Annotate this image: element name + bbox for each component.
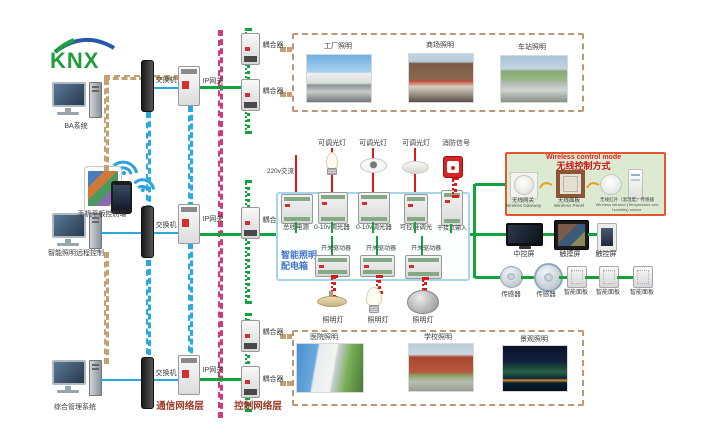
- driver-label: 开关驱动器: [408, 246, 444, 253]
- coupler-icon: [241, 79, 260, 111]
- switch-column-line: [146, 112, 151, 211]
- ip-gateway-label: IP网关: [200, 216, 226, 224]
- bus-stub: [450, 224, 452, 233]
- communication-layer-label: 通信网络层: [148, 402, 212, 412]
- ip-gateway-icon: [178, 355, 200, 395]
- gallery-photo-label: 车站照明: [508, 44, 556, 52]
- bus-power-module: [281, 194, 313, 224]
- photo-factory: [306, 54, 372, 103]
- dome-lamp-icon: [407, 290, 439, 314]
- zap-icon: [586, 179, 600, 191]
- ethernet-line: [100, 379, 141, 381]
- ba-computer-icon: [52, 82, 100, 126]
- sensors-link-line: [521, 276, 534, 279]
- gateway-column-line: [188, 106, 193, 208]
- load-label: 可调光灯: [398, 140, 434, 148]
- wireless-sensor-icon: [600, 174, 622, 195]
- ethernet-line: [152, 87, 178, 89]
- ba-computer-label: BA系统: [52, 123, 100, 131]
- wireless-gateway-dial-icon: [514, 175, 534, 195]
- gallery-photo-label: 医院照明: [300, 334, 348, 342]
- smart-panel-icon: [633, 266, 653, 288]
- ethernet-line: [100, 232, 142, 234]
- smart-panel-icon: [567, 266, 587, 288]
- knx-line: [198, 86, 243, 89]
- management-trunk-line: [104, 252, 109, 364]
- coupler-icon: [241, 33, 260, 65]
- diagram-canvas: KNX BA系统 智能照明远程控制 综合管理系统 手机平板控制端: [0, 0, 715, 443]
- sensor-icon: [500, 266, 523, 288]
- ceiling-lamp-icon: [402, 161, 429, 174]
- management-computer-icon: [52, 360, 100, 404]
- screen-label: 触摸屏: [552, 251, 588, 259]
- driver-label: 开关驱动器: [318, 246, 354, 253]
- monitor-icon: [52, 82, 86, 107]
- lamp-label: 照明灯: [366, 317, 390, 325]
- ip-gateway-label: IP网关: [200, 367, 226, 375]
- coupler-label: 耦合器: [260, 376, 286, 384]
- bus-stub: [372, 222, 374, 233]
- gallery-photo-label: 景观照明: [510, 336, 558, 344]
- coupler-label: 耦合器: [260, 42, 286, 50]
- knx-logo-text: KNX: [50, 48, 99, 74]
- mains-line: [295, 155, 297, 192]
- bus-stub: [331, 222, 333, 233]
- coupler-icon: [241, 207, 260, 239]
- switch-label: 交换机: [154, 222, 178, 230]
- wireless-panel-icon: [556, 170, 585, 198]
- knx-backbone-line: [245, 180, 250, 304]
- load-label: 可调光灯: [355, 140, 391, 148]
- sensor-label: 传感器: [498, 291, 524, 298]
- wireless-item-en: Wireless infrared (Temperature and humid…: [594, 203, 660, 212]
- load-label: 可调光灯: [310, 140, 354, 148]
- control-layer-label: 控制网络层: [226, 402, 290, 412]
- switch-label: 交换机: [154, 77, 178, 85]
- smart-panel-label: 智能面板: [561, 290, 591, 297]
- sensor-label: 传感器: [533, 291, 559, 298]
- switch-label: 交换机: [154, 370, 178, 378]
- dimmer-module: [318, 192, 348, 224]
- ip-gateway-label: IP网关: [200, 78, 226, 86]
- driver-label: 开关驱动器: [363, 246, 399, 253]
- module-label: 干接点输入: [436, 226, 468, 233]
- sensors-branch-line: [475, 276, 500, 279]
- dimmer-module: [358, 192, 390, 224]
- bus-stub: [414, 222, 416, 233]
- smart-panel-label: 智能面板: [627, 290, 657, 297]
- mains-input-label: 220v交流: [262, 168, 294, 175]
- switch-driver-module: [405, 255, 442, 279]
- coupler-label: 耦合器: [260, 88, 286, 96]
- touch-control-screen-icon: [597, 223, 617, 252]
- screens-branch-line: [475, 233, 506, 236]
- ip-gateway-icon: [178, 204, 200, 244]
- knx-logo: KNX: [48, 34, 120, 78]
- smart-panel-label: 智能面板: [593, 290, 623, 297]
- module-label: 可控硅调光: [398, 224, 434, 231]
- screens-link-line: [588, 233, 597, 236]
- load-label: 消防信号: [438, 140, 474, 148]
- wireless-branch-line: [475, 183, 505, 186]
- fire-signal-line: [452, 177, 457, 198]
- management-computer-label: 综合管理系统: [38, 404, 112, 412]
- gallery-photo-label: 学校照明: [414, 334, 462, 342]
- tower-icon: [89, 82, 102, 118]
- zap-icon: [539, 179, 553, 191]
- photo-station: [500, 55, 568, 103]
- sensors-link-line: [617, 276, 633, 279]
- switch-driver-module: [360, 255, 395, 277]
- phone-icon: [111, 181, 132, 214]
- screens-link-line: [543, 233, 554, 236]
- ethernet-switch-icon: [141, 206, 154, 258]
- ethernet-line: [152, 232, 178, 234]
- ceiling-lamp-icon: [317, 296, 347, 307]
- bus-stub: [295, 222, 297, 233]
- lamp-label: 照明灯: [321, 317, 345, 325]
- wireless-item-en: Wireless Gateway: [500, 204, 546, 209]
- lamp-base-icon: [369, 305, 379, 313]
- wireless-item-en: Wireless Panel: [548, 204, 590, 209]
- coupler-label: 耦合器: [260, 329, 286, 337]
- wireless-sensor-body-icon: [628, 169, 643, 199]
- switch-column-line: [146, 260, 151, 364]
- thyristor-dimmer-module: [404, 194, 428, 224]
- screen-label: 触控屏: [593, 251, 619, 259]
- gallery-photo-label: 商场照明: [416, 42, 464, 50]
- tower-icon: [89, 360, 102, 396]
- ethernet-line: [152, 379, 178, 381]
- screen-label: 中控屏: [507, 251, 541, 259]
- photo-mall: [408, 53, 474, 103]
- photo-hospital: [296, 343, 364, 393]
- smart-panel-icon: [599, 266, 619, 288]
- photo-landscape: [502, 345, 568, 392]
- ip-gateway-icon: [178, 66, 200, 106]
- coupler-icon: [241, 366, 260, 398]
- switch-driver-module: [315, 255, 350, 277]
- monitor-icon: [52, 360, 86, 385]
- central-screen-icon: [506, 223, 543, 246]
- lamp-label: 照明灯: [411, 317, 435, 325]
- knx-right-trunk: [473, 184, 476, 278]
- touch-screen-icon: [554, 220, 589, 250]
- sensors-link-line: [559, 276, 567, 279]
- sensors-link-line: [585, 276, 599, 279]
- lamp-base-icon: [327, 168, 337, 175]
- management-trunk-line: [104, 79, 109, 171]
- photo-school: [408, 343, 474, 392]
- downlight-icon: [360, 158, 387, 173]
- tv-stand-icon: [519, 246, 531, 249]
- bulb-lamp-icon: [366, 287, 382, 307]
- gallery-photo-label: 工厂照明: [314, 43, 362, 51]
- mobile-label: 手机平板控制端: [62, 211, 142, 219]
- fire-alarm-icon: [443, 156, 463, 178]
- gateway-column-line: [188, 243, 193, 362]
- coupler-icon: [241, 320, 260, 352]
- ethernet-switch-icon: [141, 60, 154, 112]
- module-label: 0-10v调光器: [352, 224, 396, 231]
- knx-line: [198, 378, 243, 381]
